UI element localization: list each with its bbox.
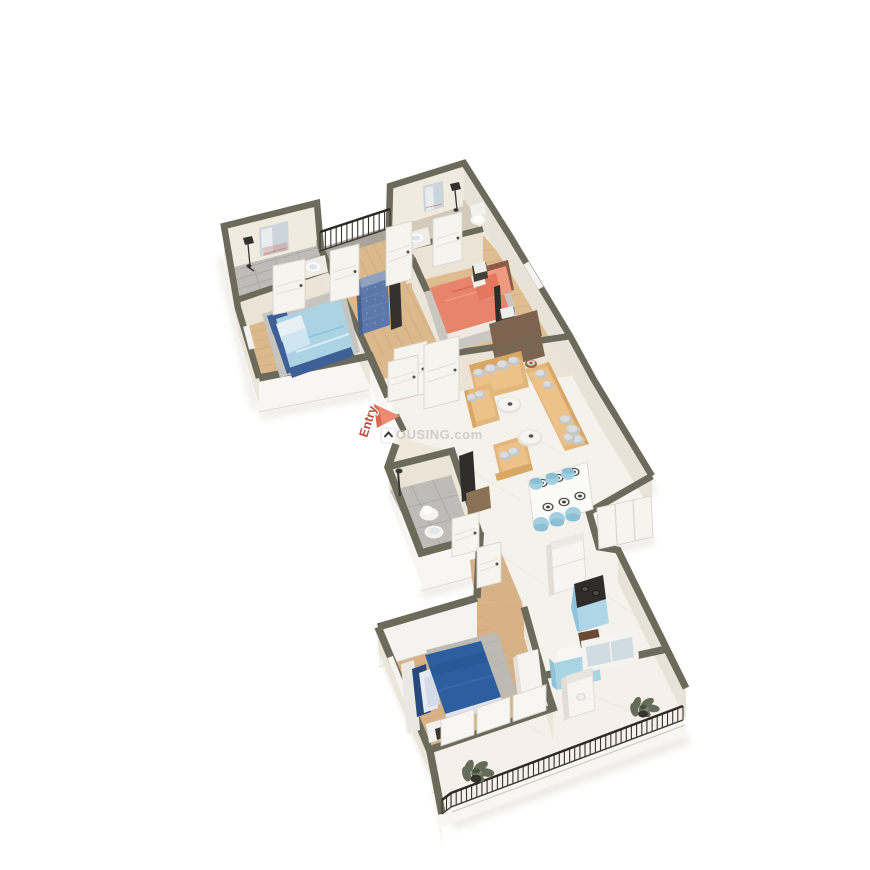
svg-text:OUSING.com: OUSING.com	[396, 427, 483, 442]
